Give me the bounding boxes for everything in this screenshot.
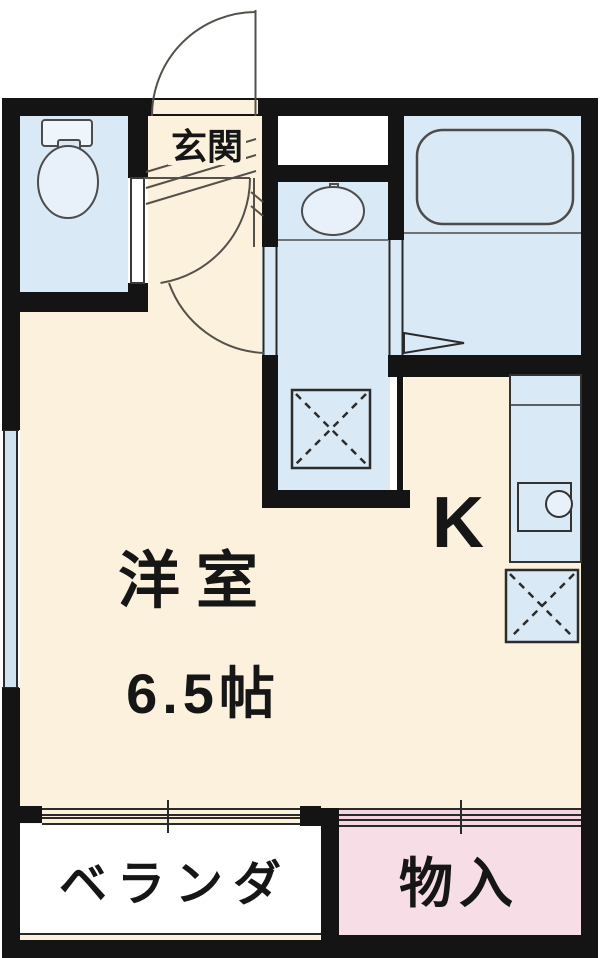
- wall-closet-bottom: [321, 935, 598, 958]
- wall-toilet-bottom: [2, 292, 148, 312]
- kitchen-counter: [510, 375, 581, 562]
- niche-area: [278, 116, 390, 165]
- kitchen-faucet: [546, 491, 572, 517]
- floorplan-drawing: [0, 0, 600, 958]
- wall-niche-bath-divider: [388, 116, 404, 240]
- wall-toilet-right-top: [128, 116, 148, 178]
- floorplan: 玄関 洋室 6.5帖 K ベランダ 物入: [0, 0, 600, 958]
- wall-top-right: [258, 98, 598, 116]
- kitchen-corridor-divider: [397, 375, 403, 491]
- wall-left-upper: [2, 98, 20, 430]
- wall-corridor-west-upper: [262, 116, 278, 247]
- toilet: [38, 120, 98, 218]
- left-window: [4, 430, 17, 688]
- wall-top-left: [2, 98, 152, 116]
- wall-corridor-west-lower: [262, 355, 278, 508]
- washing-machine-space: [292, 390, 370, 468]
- wall-corridor-bottom: [262, 490, 410, 508]
- wall-veranda-window-stub: [13, 806, 42, 823]
- kitchen-label: K: [432, 487, 484, 559]
- room-size-label: 6.5帖: [126, 666, 280, 722]
- wall-right: [581, 98, 598, 958]
- wall-bathroom-bottom: [388, 355, 598, 377]
- room-name-label: 洋室: [118, 551, 274, 613]
- wall-niche-bottom: [278, 165, 390, 182]
- closet-label: 物入: [399, 857, 519, 911]
- genkan-label: 玄関: [168, 129, 246, 165]
- wall-veranda-closet-stub: [300, 806, 321, 826]
- veranda-label: ベランダ: [59, 861, 291, 909]
- refrigerator-space: [506, 570, 578, 642]
- bathroom-floor: [404, 116, 581, 355]
